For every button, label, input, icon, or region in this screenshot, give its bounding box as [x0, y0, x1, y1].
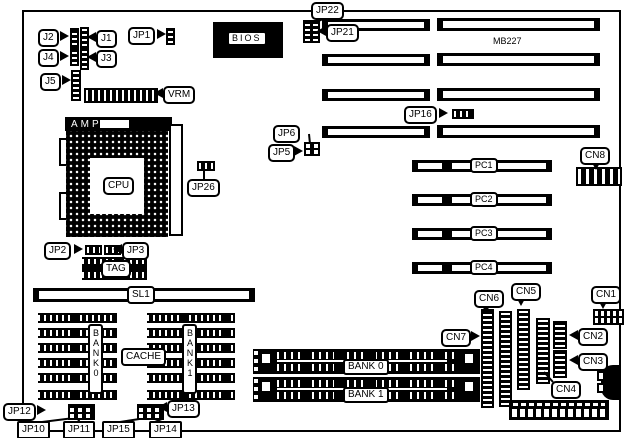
pointer-j5: [62, 75, 71, 85]
pointer-cn2: [569, 330, 578, 340]
callout-sl1: SL1: [127, 286, 155, 304]
jumper-j2-pins: [70, 28, 79, 47]
callout-jp1: JP1: [128, 27, 155, 45]
jumper-jp1-pins: [166, 28, 175, 45]
callout-cn3: CN3: [578, 353, 608, 371]
motherboard-diagram: J2 J1 J4 J3 J5 JP1 BIOS JP22 JP21 MB227 …: [0, 0, 629, 438]
pointer-jp12: [37, 405, 46, 415]
pointer-jp2: [74, 244, 83, 254]
bios-label: BIOS: [227, 31, 267, 46]
jumper-j4-pins: [70, 47, 79, 66]
callout-jp2: JP2: [44, 242, 71, 260]
pci-slot-label: PC4: [470, 260, 498, 275]
callout-j1: J1: [96, 30, 117, 48]
callout-jp5: JP5: [268, 144, 295, 162]
callout-jp13: JP13: [167, 400, 200, 418]
simm-bank1-label: BANK 1: [343, 387, 389, 403]
pci-slot-label: PC1: [470, 158, 498, 173]
callout-jp22: JP22: [311, 2, 344, 20]
callout-jp11: JP11: [63, 421, 95, 438]
callout-jp21: JP21: [326, 24, 359, 42]
callout-jp6: JP6: [273, 125, 300, 143]
pointer-cn3: [569, 355, 578, 365]
jumper-jp5-jp6-pins: [304, 142, 320, 156]
callout-cn8: CN8: [580, 147, 610, 165]
pci-slot-label: PC2: [470, 192, 498, 207]
pci-slot-label: PC3: [470, 226, 498, 241]
pointer-jp3: [113, 244, 122, 254]
jumper-block-jp10-jp12: [68, 404, 95, 420]
callout-cn5: CN5: [511, 283, 541, 301]
pointer-jp1: [157, 29, 166, 39]
cache-bank0-label: BANK0: [88, 324, 103, 394]
pointer-jp21: [317, 26, 326, 36]
pointer-j2: [60, 31, 69, 41]
callout-j3: J3: [96, 50, 117, 68]
pointer-j1: [87, 32, 96, 42]
callout-cache: CACHE: [121, 348, 166, 366]
callout-jp3: JP3: [122, 242, 149, 260]
callout-jp14: JP14: [149, 421, 182, 438]
callout-vrm: VRM: [163, 86, 195, 104]
callout-jp26: JP26: [187, 179, 220, 197]
callout-cn6: CN6: [474, 290, 504, 308]
pointer-jp13: [158, 402, 167, 412]
callout-j2: J2: [38, 29, 59, 47]
jumper-jp16-pins: [452, 109, 474, 119]
pointer-j4: [60, 51, 69, 61]
jumper-j5-pins: [71, 70, 81, 101]
pointer-jp16: [439, 108, 448, 118]
callout-cn1: CN1: [591, 286, 621, 304]
callout-j4: J4: [38, 49, 59, 67]
callout-jp15: JP15: [102, 421, 135, 438]
callout-cn4: CN4: [551, 381, 581, 399]
jumper-jp2-pins: [85, 245, 102, 255]
simm-bank0-label: BANK 0: [343, 359, 389, 375]
callout-jp12: JP12: [3, 403, 36, 421]
callout-tag: TAG: [101, 260, 131, 278]
pointer-jp5: [294, 146, 303, 156]
callout-jp16: JP16: [404, 106, 437, 124]
cache-bank1-label: BANK1: [182, 324, 197, 394]
callout-j5: J5: [40, 73, 61, 91]
callout-cn2: CN2: [578, 328, 608, 346]
pointer-cn7: [471, 331, 480, 341]
callout-cpu: CPU: [103, 177, 134, 195]
callout-jp10: JP10: [17, 421, 50, 438]
pointer-j3: [87, 52, 96, 62]
pointer-vrm: [154, 88, 163, 98]
jumper-jp26-pins: [197, 161, 215, 171]
callout-cn7: CN7: [441, 329, 471, 347]
